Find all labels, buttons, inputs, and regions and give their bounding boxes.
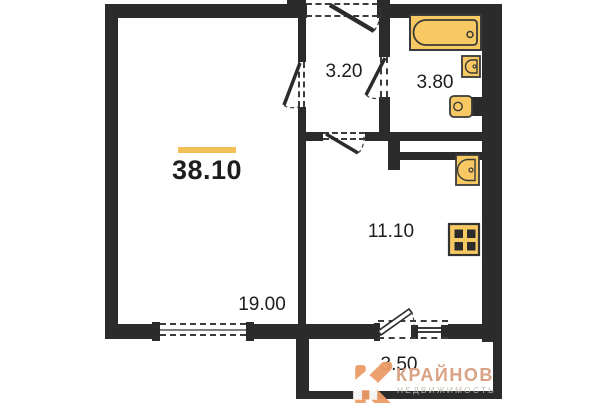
balcony-door-swing xyxy=(378,309,414,335)
toilet-icon xyxy=(450,96,472,117)
entrance-door-swing xyxy=(330,5,380,31)
label-kitchen-area: 11.10 xyxy=(361,222,421,241)
kitchen-sink-icon xyxy=(456,155,479,185)
agency-watermark: КРАЙНОВ НЕДВИЖИМОСТЬ xyxy=(352,362,532,403)
living-room-door-swing xyxy=(284,63,300,108)
plan-graphics xyxy=(0,0,605,403)
label-hallway-area: 3.20 xyxy=(316,62,372,81)
label-bathroom-area: 3.80 xyxy=(407,73,463,92)
floor-plan: 38.10 19.00 3.20 3.80 11.10 3.50 КРАЙНОВ… xyxy=(0,0,605,403)
kitchen-door-swing xyxy=(326,134,364,153)
label-living-room-area: 19.00 xyxy=(234,295,290,314)
sink-icon xyxy=(462,56,480,77)
label-total-area: 38.10 xyxy=(170,157,244,184)
logo-k-house-icon xyxy=(352,362,394,403)
stove-icon xyxy=(449,224,479,255)
logo-subtitle-text: НЕДВИЖИМОСТЬ xyxy=(397,386,496,395)
logo-brand-text: КРАЙНОВ xyxy=(396,366,494,384)
area-accent-bar xyxy=(178,147,236,153)
bathtub-icon xyxy=(410,15,481,50)
